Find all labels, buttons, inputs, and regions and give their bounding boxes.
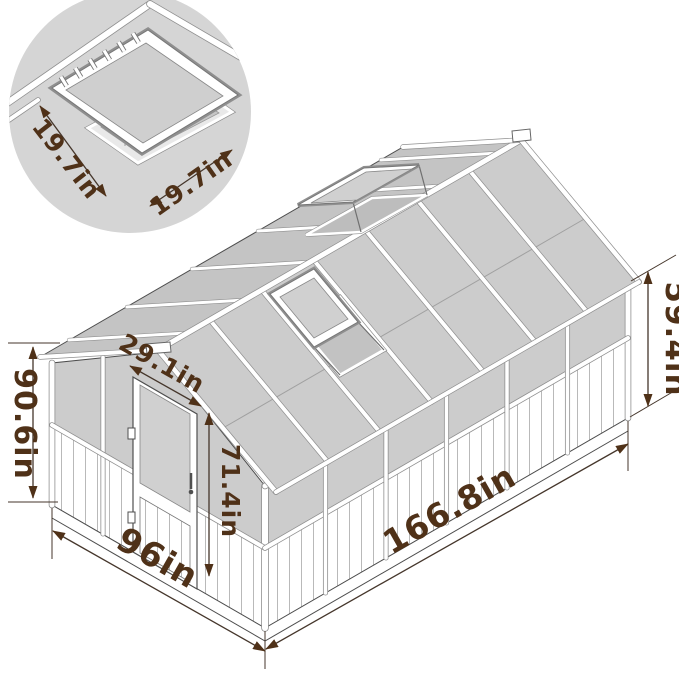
inset-detail-circle: 19.7in 19.7in xyxy=(0,0,256,234)
dimension-label-eave-height: 59.4in xyxy=(658,281,679,396)
dimension-label-door-height: 71.4in xyxy=(216,444,245,538)
door-hinge-top xyxy=(128,428,135,439)
back-peak-finial xyxy=(512,129,531,142)
dimension-label-total-height: 90.6in xyxy=(7,368,42,480)
product-dimension-diagram: 19.7in 19.7in 90.6in 59.4in 29.1in 71.4i… xyxy=(0,0,679,673)
greenhouse-drawing: 19.7in 19.7in 90.6in 59.4in 29.1in 71.4i… xyxy=(0,0,679,673)
